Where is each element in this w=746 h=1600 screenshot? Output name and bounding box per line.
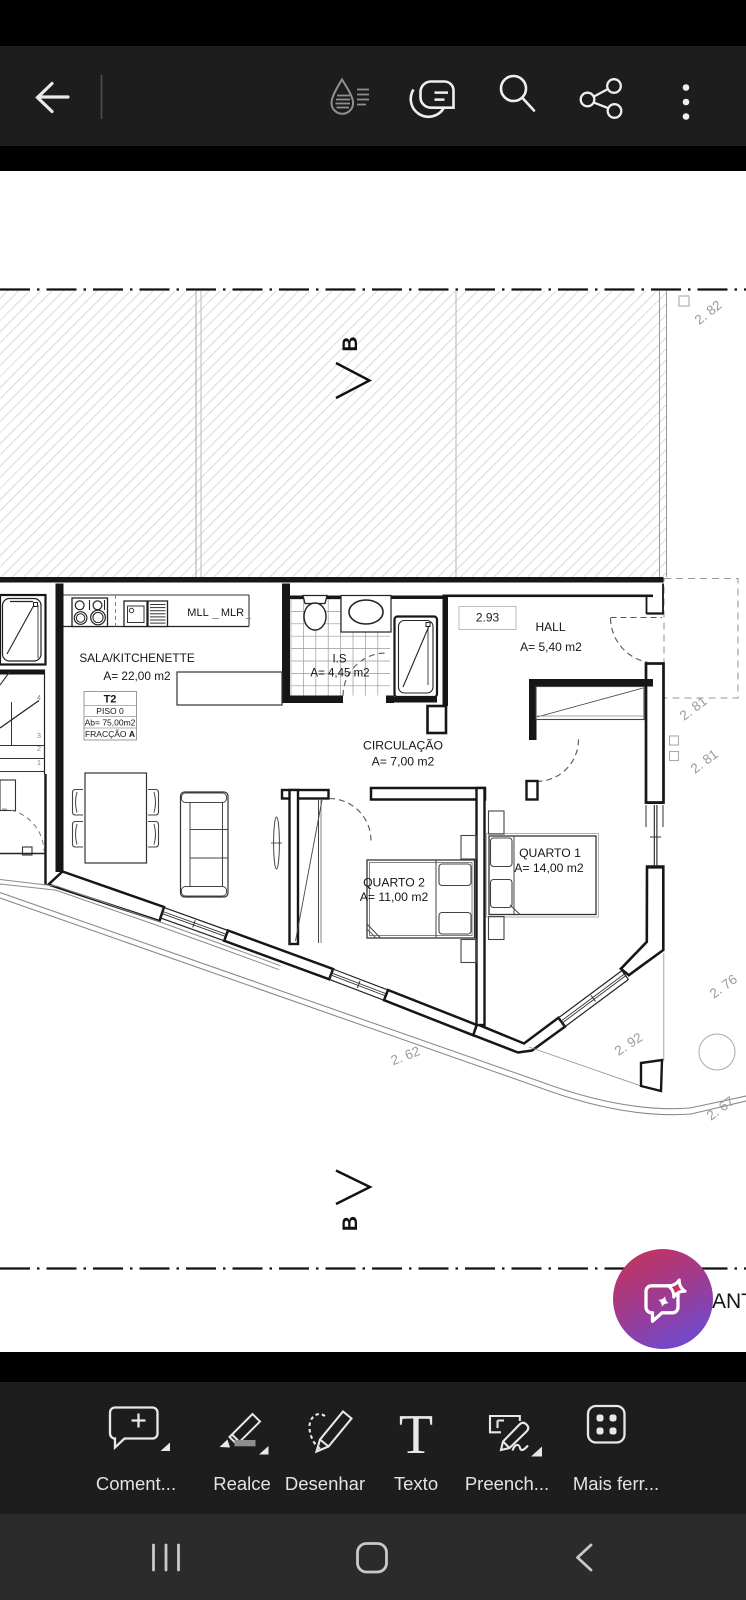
svg-text:Coment...: Coment... [96, 1473, 176, 1494]
svg-text:A= 4,45 m2: A= 4,45 m2 [310, 668, 369, 680]
svg-text:Mais ferr...: Mais ferr... [573, 1473, 659, 1494]
svg-text:A= 5,40 m2: A= 5,40 m2 [520, 640, 582, 654]
svg-text:1: 1 [37, 758, 41, 767]
svg-text:Texto: Texto [394, 1473, 438, 1494]
svg-text:I.S: I.S [332, 654, 346, 666]
svg-text:4: 4 [37, 693, 41, 702]
svg-text:2. 81: 2. 81 [688, 746, 721, 776]
svg-text:2. 62: 2. 62 [389, 1043, 422, 1068]
svg-text:FRACÇÃO A: FRACÇÃO A [85, 729, 135, 739]
svg-text:B: B [339, 1216, 362, 1231]
svg-text:MLR: MLR [221, 607, 244, 619]
svg-text:2. 76: 2. 76 [707, 971, 740, 1001]
svg-text:T2: T2 [104, 694, 117, 706]
svg-text:2. 82: 2. 82 [692, 297, 725, 327]
svg-text:2. 92: 2. 92 [612, 1030, 645, 1059]
svg-text:Realce: Realce [213, 1473, 271, 1494]
svg-text:Preench...: Preench... [465, 1473, 549, 1494]
svg-text:3: 3 [37, 731, 41, 740]
svg-text:CIRCULAÇÃO: CIRCULAÇÃO [363, 739, 443, 753]
svg-text:2.93: 2.93 [476, 611, 500, 625]
svg-text:T: T [399, 1404, 433, 1466]
svg-text:MLL: MLL [187, 607, 208, 619]
svg-text:QUARTO 1: QUARTO 1 [519, 846, 581, 860]
svg-text:2. 67: 2. 67 [704, 1093, 737, 1123]
svg-text:QUARTO 2: QUARTO 2 [363, 876, 425, 890]
svg-text:A= 22,00 m2: A= 22,00 m2 [103, 669, 170, 683]
svg-text:HALL: HALL [535, 620, 565, 634]
svg-text:SALA/KITCHENETTE: SALA/KITCHENETTE [79, 651, 195, 665]
svg-text:PISO 0: PISO 0 [96, 706, 124, 716]
svg-text:A= 14,00 m2: A= 14,00 m2 [514, 861, 584, 875]
svg-text:2. 81: 2. 81 [677, 693, 710, 723]
svg-text:ANTA: ANTA [712, 1290, 746, 1313]
svg-text:B: B [339, 336, 362, 351]
svg-text:A= 7,00 m2: A= 7,00 m2 [372, 755, 435, 769]
svg-text:Ab= 75,00m2: Ab= 75,00m2 [85, 718, 136, 728]
svg-text:A= 11,00 m2: A= 11,00 m2 [360, 890, 429, 904]
svg-text:2: 2 [37, 744, 41, 753]
svg-text:Desenhar: Desenhar [285, 1473, 365, 1494]
